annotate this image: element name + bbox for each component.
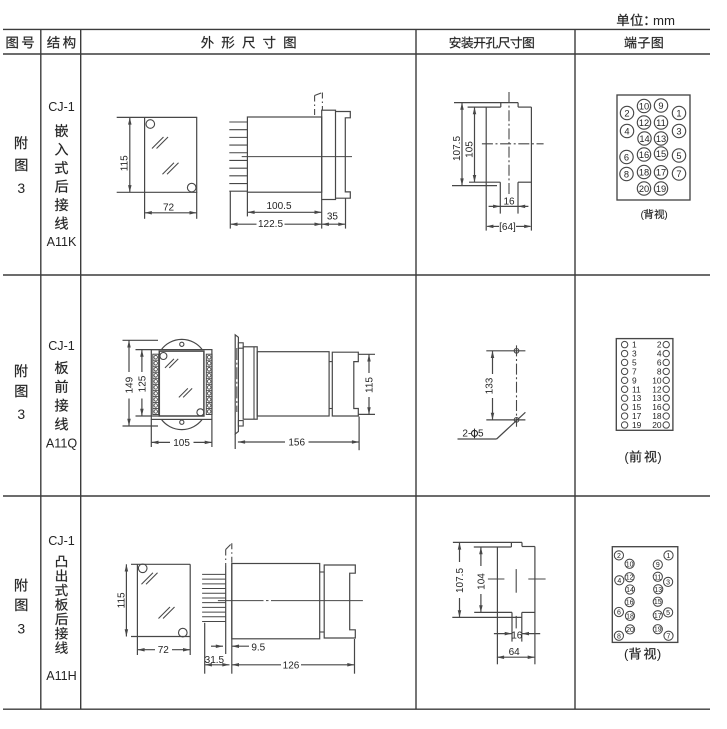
- svg-text:20: 20: [639, 184, 649, 194]
- svg-text:115: 115: [365, 377, 376, 393]
- svg-text:CJ-1: CJ-1: [48, 534, 75, 548]
- svg-text:11: 11: [656, 118, 666, 128]
- svg-text:8: 8: [617, 633, 621, 640]
- svg-text:16: 16: [626, 600, 634, 607]
- svg-text:115: 115: [117, 592, 128, 608]
- svg-text:7: 7: [667, 633, 671, 640]
- svg-text:CJ-1: CJ-1: [48, 339, 75, 353]
- svg-text:): ): [664, 209, 668, 221]
- svg-text:5: 5: [666, 610, 670, 617]
- svg-text:6: 6: [624, 152, 629, 162]
- svg-text:3: 3: [676, 126, 681, 136]
- svg-text:125: 125: [138, 375, 149, 392]
- svg-text:2: 2: [617, 553, 621, 560]
- svg-text:2: 2: [624, 108, 629, 118]
- svg-text:115: 115: [119, 155, 130, 171]
- svg-text:35: 35: [327, 211, 339, 222]
- svg-text:19: 19: [632, 420, 642, 430]
- svg-text:[64]: [64]: [499, 222, 516, 233]
- svg-text:105: 105: [464, 141, 475, 158]
- svg-text:126: 126: [283, 660, 300, 671]
- svg-text:2-: 2-: [462, 429, 471, 440]
- svg-text:1: 1: [667, 553, 671, 560]
- svg-text:9.5: 9.5: [251, 642, 265, 653]
- svg-text:156: 156: [288, 438, 305, 449]
- svg-text:8: 8: [624, 169, 629, 179]
- svg-text:31.5: 31.5: [205, 655, 225, 666]
- svg-text:10: 10: [626, 561, 634, 568]
- svg-text:mm: mm: [653, 13, 675, 28]
- svg-text:18: 18: [626, 613, 634, 620]
- svg-text:19: 19: [656, 184, 666, 194]
- svg-text:): ): [657, 449, 661, 464]
- svg-text:17: 17: [656, 168, 666, 178]
- svg-text:5: 5: [676, 151, 681, 161]
- svg-text:122.5: 122.5: [258, 219, 283, 230]
- svg-text:3: 3: [17, 180, 25, 196]
- svg-text:13: 13: [654, 587, 662, 594]
- svg-text:13: 13: [656, 134, 666, 144]
- svg-text:A11Q: A11Q: [46, 436, 77, 450]
- svg-text:133: 133: [484, 377, 495, 394]
- svg-text:(: (: [640, 209, 644, 221]
- svg-text:4: 4: [617, 578, 621, 585]
- svg-text:12: 12: [639, 118, 649, 128]
- svg-text:7: 7: [676, 169, 681, 179]
- svg-text:20: 20: [626, 627, 634, 634]
- svg-text:107.5: 107.5: [455, 568, 466, 593]
- svg-text:16: 16: [511, 631, 523, 642]
- svg-text:20: 20: [652, 420, 662, 430]
- svg-text:72: 72: [163, 203, 175, 214]
- svg-text:16: 16: [639, 150, 649, 160]
- svg-text:17: 17: [654, 613, 662, 620]
- svg-text:105: 105: [173, 438, 190, 449]
- svg-text:64: 64: [509, 647, 521, 658]
- svg-text:3: 3: [17, 621, 25, 637]
- svg-text:10: 10: [639, 101, 649, 111]
- svg-text:1: 1: [676, 108, 681, 118]
- svg-text:9: 9: [656, 562, 660, 569]
- svg-text:14: 14: [626, 587, 634, 594]
- svg-text:3: 3: [17, 406, 25, 422]
- svg-text:15: 15: [656, 149, 666, 159]
- svg-text:15: 15: [654, 599, 662, 606]
- svg-text:(: (: [624, 647, 629, 662]
- svg-text:12: 12: [626, 575, 634, 582]
- svg-text:(: (: [624, 449, 629, 464]
- svg-text:6: 6: [617, 610, 621, 617]
- svg-text:104: 104: [477, 573, 488, 590]
- svg-text:14: 14: [639, 134, 649, 144]
- svg-text:9: 9: [658, 101, 663, 111]
- svg-text:A11K: A11K: [47, 235, 77, 249]
- svg-text:A11H: A11H: [46, 669, 77, 683]
- svg-text:19: 19: [654, 627, 662, 634]
- svg-text:5: 5: [478, 429, 484, 440]
- svg-text:4: 4: [624, 126, 629, 136]
- svg-text:107.5: 107.5: [452, 136, 463, 161]
- svg-text:149: 149: [125, 376, 136, 393]
- svg-text:100.5: 100.5: [266, 201, 291, 212]
- svg-text:CJ-1: CJ-1: [48, 100, 75, 114]
- svg-text:18: 18: [639, 167, 649, 177]
- svg-text:11: 11: [654, 574, 661, 581]
- svg-text:16: 16: [503, 197, 515, 208]
- svg-text:72: 72: [158, 645, 170, 656]
- svg-text:): ): [657, 647, 661, 662]
- svg-text:3: 3: [666, 579, 670, 586]
